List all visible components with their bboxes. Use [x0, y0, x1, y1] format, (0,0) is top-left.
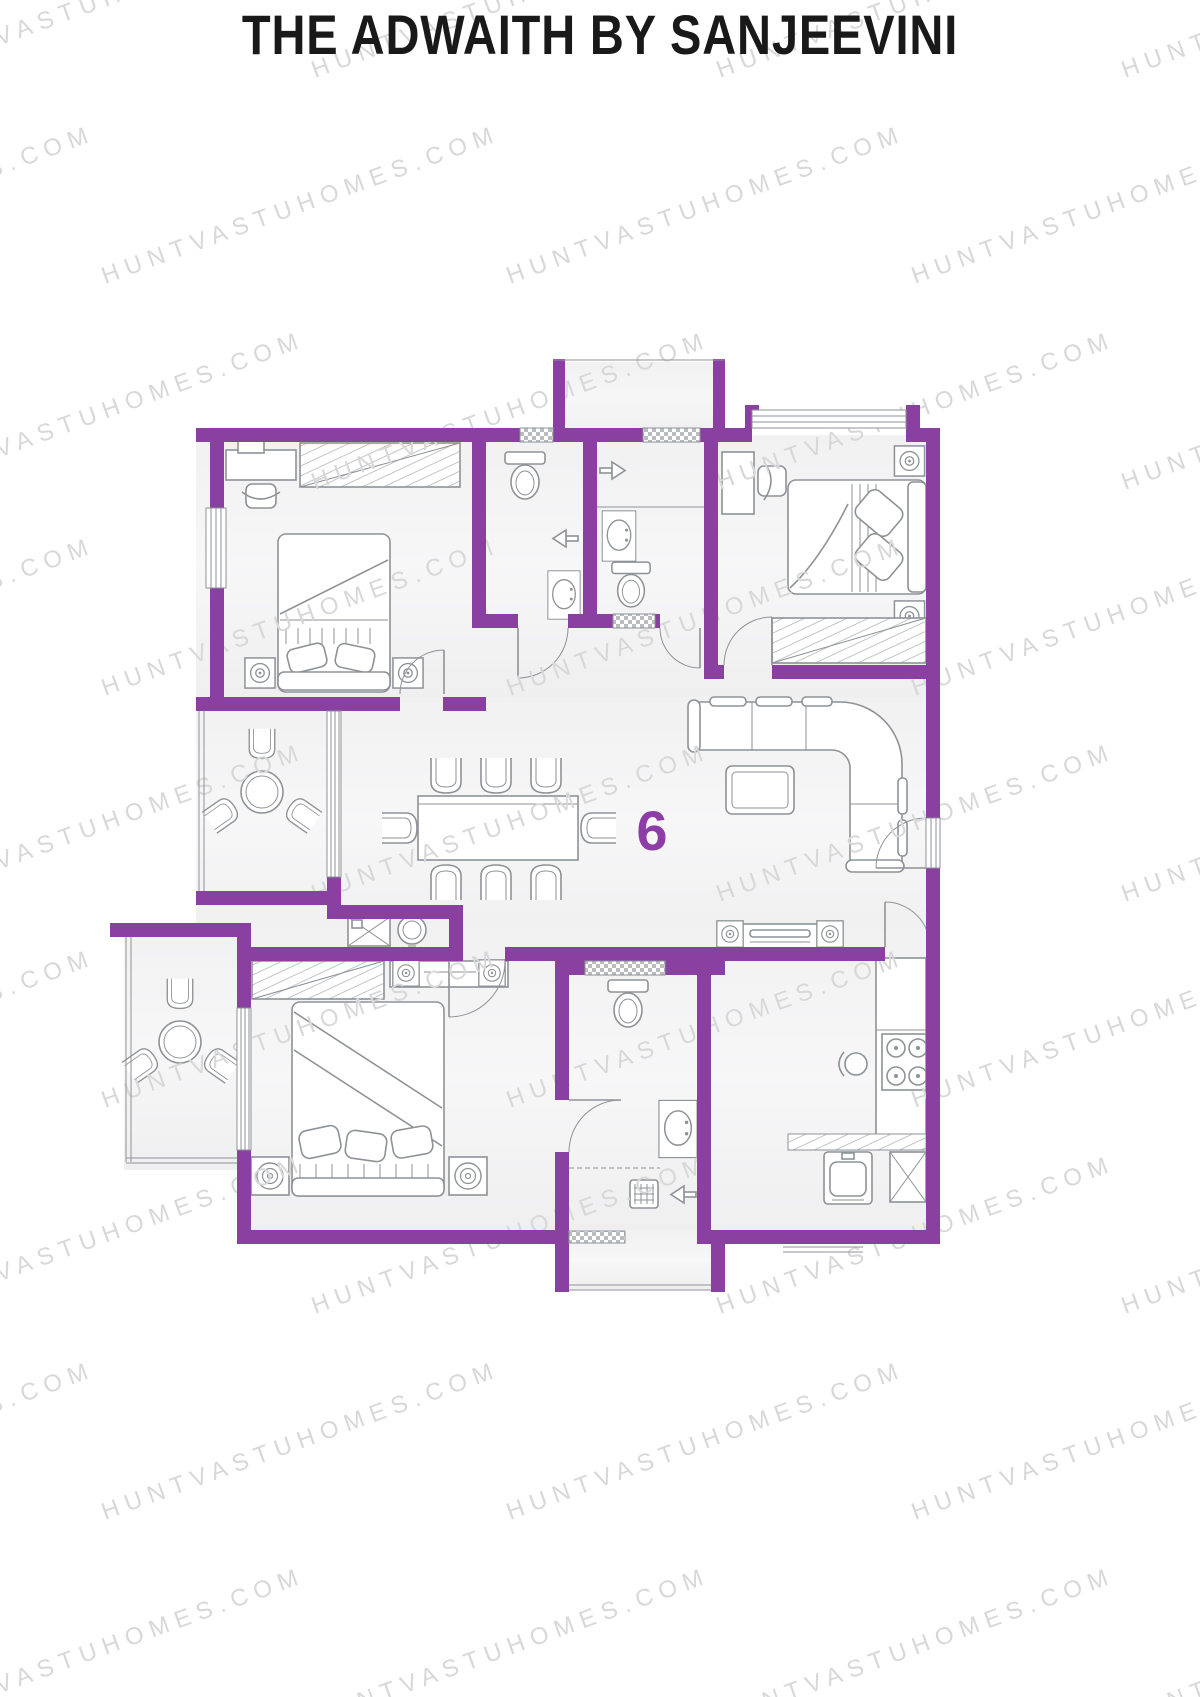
watermark-text: HUNTVASTUHOMES.COM [308, 1562, 713, 1697]
kitchen-sink-icon [824, 1152, 872, 1204]
stove-icon [882, 1034, 927, 1090]
window-hatch [569, 1231, 625, 1243]
window [206, 508, 226, 588]
watermark-text: HUNTVASTUHOMES.COM [908, 532, 1200, 702]
page-title: THE ADWAITH BY SANJEEVINI [96, 2, 1104, 67]
unit-number: 6 [636, 799, 667, 862]
watermark-text: HUNTVASTUHOMES.COM [1118, 0, 1200, 84]
watermark-text: HUNTVASTUHOMES.COM [98, 1356, 503, 1526]
floor-plan: HUNTVASTUHOMES.COMHUNTVASTUHOMES.COMHUNT… [0, 0, 1200, 1697]
bay-window [752, 410, 906, 428]
sliding-window [327, 711, 341, 877]
window-hatch [585, 961, 665, 975]
wash-basin-icon [548, 571, 580, 619]
watermark-text: HUNTVASTUHOMES.COM [908, 1356, 1200, 1526]
watermark-text: HUNTVASTUHOMES.COM [713, 1562, 1118, 1697]
watermark-text: HUNTVASTUHOMES.COM [0, 944, 98, 1114]
window-hatch [643, 428, 700, 442]
window-hatch [520, 428, 553, 442]
watermark-text: HUNTVASTUHOMES.COM [1118, 738, 1200, 908]
tv-unit-icon [717, 921, 843, 948]
watermark-text: HUNTVASTUHOMES.COM [0, 120, 98, 290]
watermark-text: HUNTVASTUHOMES.COM [0, 1356, 98, 1526]
counter-hatch [788, 1134, 926, 1150]
watermark-text: HUNTVASTUHOMES.COM [503, 120, 908, 290]
watermark-text: HUNTVASTUHOMES.COM [503, 1356, 908, 1526]
washing-machine-icon [348, 917, 390, 946]
wash-basin-icon [659, 1100, 697, 1157]
patio-door [926, 818, 940, 868]
service-shaft-icon [890, 1152, 926, 1202]
sliding-window [237, 1008, 251, 1150]
watermark-text: HUNTVASTUHOMES.COM [1118, 326, 1200, 496]
window-hatch [613, 614, 655, 628]
wash-basin-icon [602, 511, 636, 561]
watermark-text: HUNTVASTUHOMES.COM [0, 532, 98, 702]
watermark-text: HUNTVASTUHOMES.COM [908, 944, 1200, 1114]
watermark-text: HUNTVASTUHOMES.COM [0, 1562, 308, 1697]
utility-niche [348, 916, 426, 946]
watermark-text: HUNTVASTUHOMES.COM [98, 120, 503, 290]
wardrobe-icon [772, 618, 926, 663]
watermark-text: HUNTVASTUHOMES.COM [1118, 1562, 1200, 1697]
coffee-table-icon [726, 766, 794, 814]
watermark-text: HUNTVASTUHOMES.COM [908, 120, 1200, 290]
watermark-text: HUNTVASTUHOMES.COM [1118, 1150, 1200, 1320]
